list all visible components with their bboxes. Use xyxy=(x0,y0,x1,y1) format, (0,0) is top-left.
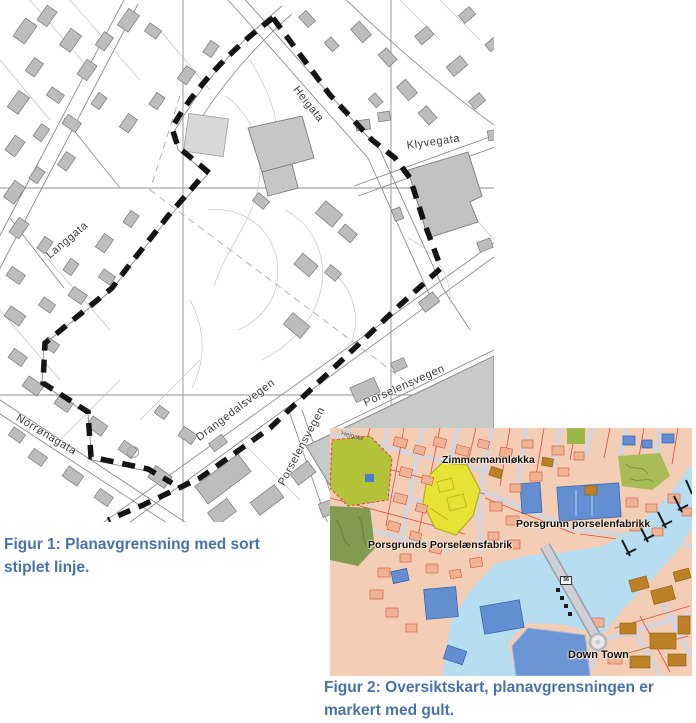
label-zimmermannlokka: Zimmermannløkka xyxy=(442,454,535,466)
figure2-overview-map: Heigata Zimmermannløkka Porsgrunn porsel… xyxy=(330,428,692,676)
figure1-caption: Figur 1: Planavgrensning med sort stiple… xyxy=(4,534,296,580)
label-down-town: Down Town xyxy=(568,649,629,661)
label-porsgrunds-porselansfabrik: Porsgrunds Porselænsfabrik xyxy=(368,539,512,551)
road-number-badge: 36 xyxy=(560,576,572,585)
figure2-caption: Figur 2: Oversiktskart, planavgrensninge… xyxy=(324,677,696,723)
label-porsgrunn-porselenfabrikk: Porsgrunn porselenfabrikk xyxy=(516,518,650,530)
document-page: Heigata Klyvegata Langgata Norrønagata D… xyxy=(0,0,696,723)
